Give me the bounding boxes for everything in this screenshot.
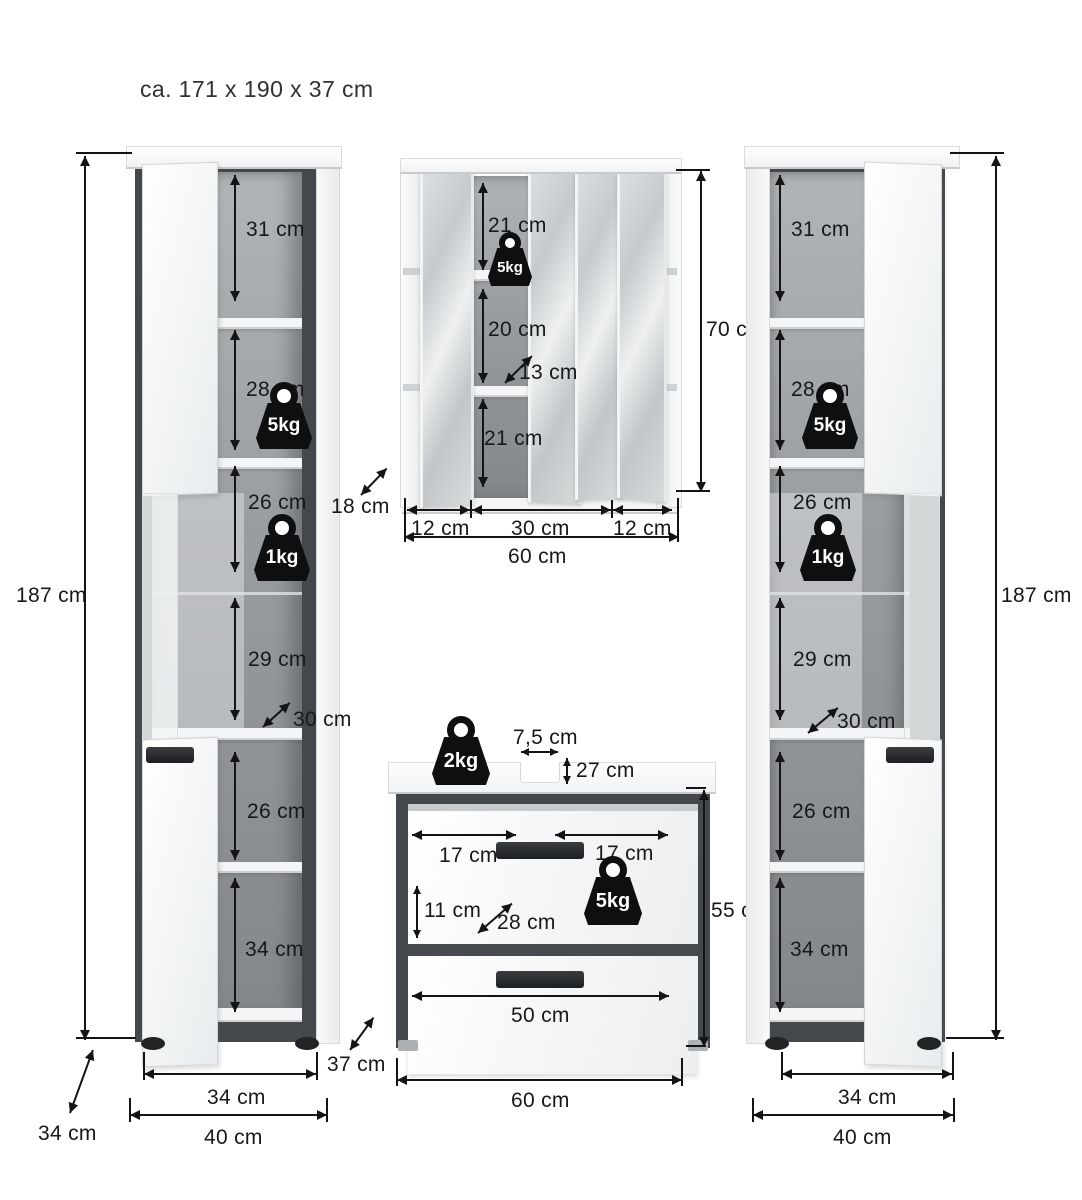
- left-cabinet-foot: [295, 1037, 319, 1050]
- left-depth-label: 34 cm: [38, 1122, 97, 1146]
- dim-arrow: [779, 175, 781, 301]
- left-outer-width-arrow: [130, 1114, 327, 1116]
- cutout-width-label: 7,5 cm: [513, 726, 578, 750]
- left-cabinet-upper-door: [142, 162, 218, 497]
- gap-depth-label: 37 cm: [327, 1053, 386, 1077]
- dim-arrow: [234, 752, 236, 860]
- vanity-rail: [408, 804, 698, 811]
- dim-arrow: [779, 752, 781, 860]
- right-cabinet-foot: [765, 1037, 789, 1050]
- weight-label: 1kg: [254, 535, 310, 581]
- dim-arrow: [234, 330, 236, 450]
- mirror-door-right: [617, 168, 667, 502]
- right-shelf-depth-label: 30 cm: [837, 710, 896, 734]
- mirror-depth-arrow: [360, 468, 387, 496]
- sink-pipe-cutout: [520, 762, 560, 783]
- dim-tick: [686, 787, 706, 789]
- dim-arrow: [482, 289, 484, 383]
- right-cabinet-glass-shelf: [770, 592, 910, 595]
- right-outer-width-arrow: [753, 1114, 953, 1116]
- dim-tick: [952, 1052, 954, 1080]
- left-outer-width-label: 40 cm: [204, 1126, 263, 1150]
- right-cabinet-lower-door: [864, 737, 942, 1068]
- right-cabinet-glass-door-edge: [904, 493, 940, 740]
- drawer-right-arrow: [555, 834, 668, 836]
- dim-tick: [950, 152, 1004, 154]
- load-weight-icon: 5kg: [256, 382, 312, 449]
- weight-label: 5kg: [584, 877, 642, 925]
- mirror-depth-label: 18 cm: [331, 495, 390, 519]
- load-weight-icon: 5kg: [488, 232, 532, 286]
- right-compartment-label: 26 cm: [793, 491, 852, 515]
- weight-label: 5kg: [488, 248, 532, 286]
- left-cabinet-glass-door-edge: [142, 493, 178, 740]
- load-weight-icon: 1kg: [254, 514, 310, 581]
- cutout-width-arrow: [521, 751, 558, 753]
- right-cabinet-door-handle: [886, 747, 934, 763]
- overall-dimensions-title: ca. 171 x 190 x 37 cm: [140, 76, 373, 103]
- left-compartment-label: 34 cm: [245, 938, 304, 962]
- dim-arrow: [482, 183, 484, 270]
- dim-tick: [953, 1098, 955, 1122]
- vanity-lower-drawer-handle: [496, 971, 584, 988]
- mirror-cabinet-top: [400, 158, 682, 174]
- drawer-height-arrow: [416, 886, 418, 938]
- dim-arrow: [234, 598, 236, 720]
- vanity-height-arrow: [703, 790, 705, 1047]
- left-cabinet-foot: [141, 1037, 165, 1050]
- cutout-offset-arrow: [566, 758, 568, 784]
- left-compartment-label: 26 cm: [248, 491, 307, 515]
- left-cabinet-lower-door: [142, 737, 218, 1068]
- load-weight-icon: 5kg: [584, 856, 642, 925]
- left-compartment-label: 26 cm: [247, 800, 306, 824]
- right-compartment-label: 31 cm: [791, 218, 850, 242]
- vanity-divider: [408, 944, 698, 956]
- left-depth-arrow: [69, 1050, 94, 1114]
- dim-tick: [316, 1052, 318, 1080]
- left-cabinet-side-panel: [316, 158, 340, 1044]
- left-inner-width-arrow: [144, 1073, 316, 1075]
- vanity-upper-drawer-handle: [496, 842, 584, 859]
- load-weight-icon: 1kg: [800, 514, 856, 581]
- dim-arrow: [779, 466, 781, 572]
- shelf-notch: [403, 384, 420, 391]
- dimension-diagram: ca. 171 x 190 x 37 cm 187 cm 31 cm 28 cm…: [0, 0, 1082, 1200]
- right-cabinet-upper-door: [864, 162, 942, 497]
- right-cabinet-foot: [917, 1037, 941, 1050]
- mirror-outer-width-label: 60 cm: [508, 545, 567, 569]
- shelf-notch: [403, 268, 420, 275]
- section-width-arrow: [472, 509, 611, 511]
- mirror-compartment-label: 21 cm: [484, 427, 543, 451]
- weight-label: 2kg: [432, 737, 490, 785]
- drawer-height-label: 11 cm: [424, 899, 481, 923]
- right-compartment-label: 34 cm: [790, 938, 849, 962]
- mirror-compartment-label: 20 cm: [488, 318, 547, 342]
- right-inner-width-arrow: [782, 1073, 952, 1075]
- left-cabinet-door-handle: [146, 747, 194, 763]
- mirror-door-left: [420, 168, 474, 508]
- right-inner-width-label: 34 cm: [838, 1086, 897, 1110]
- left-compartment-label: 29 cm: [248, 648, 307, 672]
- dim-arrow: [234, 175, 236, 301]
- dim-arrow: [779, 598, 781, 720]
- mirror-cabinet-height-arrow: [700, 171, 702, 492]
- right-cabinet-height-label: 187 cm: [1001, 584, 1072, 608]
- dim-arrow: [234, 466, 236, 572]
- left-inner-width-label: 34 cm: [207, 1086, 266, 1110]
- inner-depth-label: 28 cm: [497, 911, 556, 935]
- dim-arrow: [779, 878, 781, 1012]
- load-weight-icon: 2kg: [432, 716, 490, 785]
- left-compartment-label: 31 cm: [246, 218, 305, 242]
- lower-drawer-width-arrow: [412, 995, 669, 997]
- load-weight-icon: 5kg: [802, 382, 858, 449]
- right-compartment-label: 26 cm: [792, 800, 851, 824]
- mirror-shelf-depth-label: 13 cm: [519, 361, 578, 385]
- left-cabinet-height-label: 187 cm: [16, 584, 87, 608]
- right-cabinet-side-panel: [746, 158, 770, 1044]
- dim-arrow: [779, 330, 781, 450]
- vanity-foot: [398, 1040, 418, 1051]
- weight-label: 1kg: [800, 535, 856, 581]
- vanity-outer-width-label: 60 cm: [511, 1089, 570, 1113]
- right-cabinet-height-arrow: [995, 156, 997, 1040]
- cutout-offset-label: 27 cm: [576, 759, 635, 783]
- mirror-door-center-right: [575, 162, 623, 501]
- weight-label: 5kg: [256, 403, 312, 449]
- mirror-outer-width-arrow: [404, 536, 679, 538]
- vanity-outer-width-arrow: [397, 1079, 682, 1081]
- weight-label: 5kg: [802, 403, 858, 449]
- dim-arrow: [234, 878, 236, 1012]
- gap-depth-arrow: [349, 1017, 374, 1051]
- dim-tick: [76, 152, 132, 154]
- lower-drawer-width-label: 50 cm: [511, 1004, 570, 1028]
- right-outer-width-label: 40 cm: [833, 1126, 892, 1150]
- right-compartment-label: 29 cm: [793, 648, 852, 672]
- drawer-left-arrow: [412, 834, 516, 836]
- section-width-arrow: [613, 509, 672, 511]
- left-shelf-depth-label: 30 cm: [293, 708, 352, 732]
- drawer-left-label: 17 cm: [439, 844, 498, 868]
- section-width-arrow: [407, 509, 470, 511]
- vanity-frame-left-leg: [396, 790, 408, 1048]
